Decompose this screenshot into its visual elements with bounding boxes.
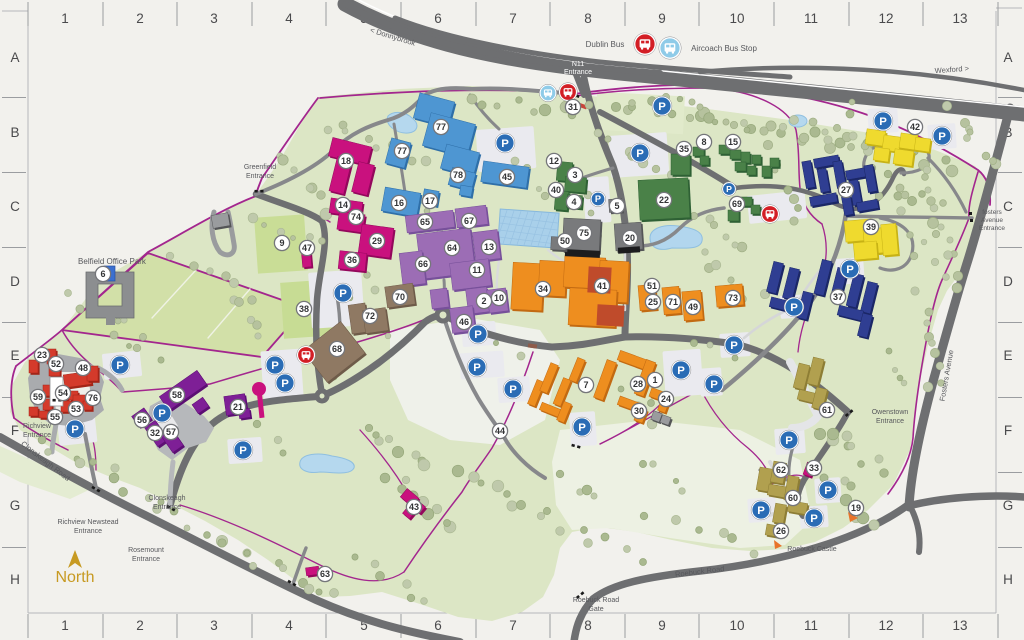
svg-text:2: 2 bbox=[481, 296, 486, 306]
svg-text:P: P bbox=[658, 101, 666, 113]
svg-text:5: 5 bbox=[614, 201, 619, 211]
svg-text:Entrance: Entrance bbox=[23, 432, 51, 439]
svg-text:Belfield Office Park: Belfield Office Park bbox=[78, 257, 147, 266]
svg-text:20: 20 bbox=[625, 233, 635, 243]
svg-text:B: B bbox=[10, 125, 19, 140]
svg-text:23: 23 bbox=[37, 350, 47, 360]
svg-text:C: C bbox=[1003, 199, 1013, 214]
svg-text:63: 63 bbox=[320, 569, 330, 579]
svg-text:P: P bbox=[595, 194, 601, 204]
svg-text:69: 69 bbox=[732, 199, 742, 209]
svg-text:A: A bbox=[10, 50, 19, 65]
svg-text:61: 61 bbox=[822, 405, 832, 415]
svg-text:39: 39 bbox=[866, 222, 876, 232]
svg-text:P: P bbox=[938, 131, 946, 143]
svg-text:F: F bbox=[1004, 423, 1012, 438]
svg-text:35: 35 bbox=[679, 144, 689, 154]
svg-text:3: 3 bbox=[572, 170, 577, 180]
svg-text:Entrance: Entrance bbox=[153, 504, 181, 511]
svg-text:60: 60 bbox=[788, 493, 798, 503]
svg-text:8: 8 bbox=[584, 618, 592, 633]
svg-text:47: 47 bbox=[302, 243, 312, 253]
svg-text:14: 14 bbox=[338, 200, 348, 210]
svg-text:40: 40 bbox=[551, 185, 561, 195]
svg-text:12: 12 bbox=[549, 156, 559, 166]
svg-text:42: 42 bbox=[910, 122, 920, 132]
svg-text:28: 28 bbox=[633, 379, 643, 389]
svg-text:27: 27 bbox=[841, 185, 851, 195]
svg-text:N11: N11 bbox=[572, 61, 584, 68]
svg-text:70: 70 bbox=[395, 292, 405, 302]
svg-text:P: P bbox=[730, 340, 738, 352]
svg-text:7: 7 bbox=[509, 11, 517, 26]
svg-text:45: 45 bbox=[502, 172, 512, 182]
svg-text:24: 24 bbox=[661, 394, 671, 404]
svg-text:77: 77 bbox=[436, 122, 446, 132]
svg-text:18: 18 bbox=[341, 156, 351, 166]
svg-text:D: D bbox=[10, 274, 20, 289]
svg-text:13: 13 bbox=[952, 618, 967, 633]
svg-text:G: G bbox=[10, 498, 21, 513]
svg-text:P: P bbox=[473, 362, 481, 374]
svg-text:16: 16 bbox=[394, 198, 404, 208]
svg-text:64: 64 bbox=[447, 243, 457, 253]
svg-text:P: P bbox=[824, 485, 832, 497]
svg-text:65: 65 bbox=[420, 217, 430, 227]
svg-text:3: 3 bbox=[210, 618, 218, 633]
svg-text:7: 7 bbox=[583, 380, 588, 390]
svg-text:Entrance: Entrance bbox=[246, 173, 274, 180]
svg-text:E: E bbox=[10, 348, 19, 363]
svg-text:32: 32 bbox=[150, 428, 160, 438]
svg-text:P: P bbox=[757, 505, 765, 517]
svg-text:C: C bbox=[10, 199, 20, 214]
svg-text:26: 26 bbox=[776, 526, 786, 536]
svg-text:4: 4 bbox=[285, 11, 293, 26]
svg-text:75: 75 bbox=[579, 228, 589, 238]
svg-text:12: 12 bbox=[878, 618, 893, 633]
svg-text:P: P bbox=[239, 445, 247, 457]
svg-text:fosters: fosters bbox=[982, 209, 1002, 216]
svg-text:73: 73 bbox=[728, 293, 738, 303]
svg-text:Gate: Gate bbox=[588, 606, 603, 613]
svg-text:9: 9 bbox=[279, 238, 284, 248]
svg-text:9: 9 bbox=[658, 11, 666, 26]
svg-text:48: 48 bbox=[78, 363, 88, 373]
svg-text:13: 13 bbox=[952, 11, 967, 26]
svg-text:Dublin Bus: Dublin Bus bbox=[586, 40, 625, 49]
svg-text:6: 6 bbox=[434, 618, 442, 633]
svg-text:P: P bbox=[281, 378, 289, 390]
svg-text:1: 1 bbox=[61, 11, 69, 26]
svg-text:7: 7 bbox=[509, 618, 517, 633]
svg-text:17: 17 bbox=[425, 196, 435, 206]
svg-text:67: 67 bbox=[464, 216, 474, 226]
svg-text:P: P bbox=[578, 422, 586, 434]
svg-text:50: 50 bbox=[560, 236, 570, 246]
svg-text:8: 8 bbox=[584, 11, 592, 26]
svg-text:P: P bbox=[879, 116, 887, 128]
svg-text:59: 59 bbox=[33, 392, 43, 402]
svg-text:74: 74 bbox=[351, 212, 361, 222]
svg-text:P: P bbox=[509, 384, 517, 396]
svg-text:6: 6 bbox=[434, 11, 442, 26]
svg-text:Roebuck Road: Roebuck Road bbox=[573, 597, 619, 604]
svg-text:P: P bbox=[677, 365, 685, 377]
svg-text:52: 52 bbox=[51, 359, 61, 369]
svg-text:34: 34 bbox=[538, 284, 548, 294]
svg-text:38: 38 bbox=[299, 304, 309, 314]
svg-text:53: 53 bbox=[71, 404, 81, 414]
svg-text:P: P bbox=[710, 379, 718, 391]
svg-text:4: 4 bbox=[571, 197, 576, 207]
svg-text:41: 41 bbox=[597, 281, 607, 291]
svg-text:P: P bbox=[501, 138, 509, 150]
svg-text:4: 4 bbox=[285, 618, 293, 633]
svg-text:Entrance: Entrance bbox=[979, 225, 1005, 232]
svg-text:E: E bbox=[1003, 348, 1012, 363]
svg-text:Richview: Richview bbox=[23, 423, 52, 430]
svg-text:Entrance: Entrance bbox=[74, 528, 102, 535]
svg-text:10: 10 bbox=[729, 11, 744, 26]
svg-text:P: P bbox=[846, 264, 854, 276]
svg-text:31: 31 bbox=[568, 102, 578, 112]
svg-text:58: 58 bbox=[172, 390, 182, 400]
svg-text:Roebuck Castle: Roebuck Castle bbox=[787, 546, 837, 553]
svg-text:62: 62 bbox=[776, 465, 786, 475]
svg-text:54: 54 bbox=[58, 388, 68, 398]
svg-text:H: H bbox=[10, 572, 20, 587]
svg-text:9: 9 bbox=[658, 618, 666, 633]
svg-text:46: 46 bbox=[459, 317, 469, 327]
svg-text:P: P bbox=[116, 360, 124, 372]
svg-text:P: P bbox=[474, 329, 482, 341]
svg-text:P: P bbox=[339, 288, 347, 300]
svg-text:Greenfield: Greenfield bbox=[244, 164, 276, 171]
svg-text:37: 37 bbox=[833, 292, 843, 302]
svg-text:10: 10 bbox=[729, 618, 744, 633]
svg-text:Entrance: Entrance bbox=[132, 556, 160, 563]
svg-text:6: 6 bbox=[100, 269, 105, 279]
svg-text:2: 2 bbox=[136, 11, 144, 26]
svg-text:56: 56 bbox=[137, 415, 147, 425]
svg-text:29: 29 bbox=[372, 236, 382, 246]
svg-text:66: 66 bbox=[418, 259, 428, 269]
svg-text:3: 3 bbox=[210, 11, 218, 26]
svg-text:49: 49 bbox=[688, 302, 698, 312]
svg-text:P: P bbox=[785, 435, 793, 447]
svg-text:P: P bbox=[726, 184, 732, 194]
svg-text:57: 57 bbox=[166, 427, 176, 437]
svg-text:1: 1 bbox=[652, 375, 657, 385]
svg-text:Owenstown: Owenstown bbox=[872, 409, 909, 416]
svg-text:36: 36 bbox=[347, 255, 357, 265]
svg-text:Aircoach Bus Stop: Aircoach Bus Stop bbox=[691, 44, 757, 53]
svg-text:22: 22 bbox=[659, 195, 669, 205]
svg-text:Richview Newstead: Richview Newstead bbox=[57, 519, 118, 526]
svg-text:19: 19 bbox=[851, 503, 861, 513]
svg-text:33: 33 bbox=[809, 463, 819, 473]
svg-text:25: 25 bbox=[648, 297, 658, 307]
svg-text:11: 11 bbox=[804, 11, 818, 26]
svg-text:Entrance: Entrance bbox=[564, 69, 592, 76]
svg-text:P: P bbox=[71, 424, 79, 436]
svg-text:P: P bbox=[158, 408, 166, 420]
svg-text:8: 8 bbox=[701, 137, 706, 147]
svg-text:71: 71 bbox=[668, 297, 678, 307]
svg-text:43: 43 bbox=[409, 502, 419, 512]
svg-text:Rosemount: Rosemount bbox=[128, 547, 164, 554]
svg-text:55: 55 bbox=[50, 412, 60, 422]
svg-text:A: A bbox=[1003, 50, 1012, 65]
svg-text:P: P bbox=[790, 302, 798, 314]
svg-text:11: 11 bbox=[804, 618, 818, 633]
svg-text:77: 77 bbox=[397, 146, 407, 156]
svg-text:P: P bbox=[636, 148, 644, 160]
svg-text:North: North bbox=[55, 569, 94, 586]
svg-text:D: D bbox=[1003, 274, 1013, 289]
svg-text:72: 72 bbox=[365, 311, 375, 321]
svg-text:51: 51 bbox=[647, 281, 657, 291]
svg-text:Avenue: Avenue bbox=[981, 217, 1003, 224]
svg-text:78: 78 bbox=[453, 170, 463, 180]
svg-text:P: P bbox=[810, 513, 818, 525]
svg-text:30: 30 bbox=[634, 406, 644, 416]
svg-text:11: 11 bbox=[472, 265, 482, 275]
svg-text:Clonskeagh: Clonskeagh bbox=[149, 495, 186, 502]
svg-text:P: P bbox=[271, 360, 279, 372]
svg-text:21: 21 bbox=[233, 402, 243, 412]
svg-text:Entrance: Entrance bbox=[876, 418, 904, 425]
svg-text:H: H bbox=[1003, 572, 1013, 587]
svg-text:G: G bbox=[1003, 498, 1014, 513]
svg-text:13: 13 bbox=[484, 242, 494, 252]
svg-text:15: 15 bbox=[728, 137, 738, 147]
svg-text:76: 76 bbox=[88, 393, 98, 403]
svg-text:68: 68 bbox=[332, 344, 342, 354]
svg-text:1: 1 bbox=[61, 618, 69, 633]
svg-text:10: 10 bbox=[494, 293, 504, 303]
svg-text:12: 12 bbox=[878, 11, 893, 26]
svg-text:44: 44 bbox=[495, 426, 505, 436]
svg-text:2: 2 bbox=[136, 618, 144, 633]
